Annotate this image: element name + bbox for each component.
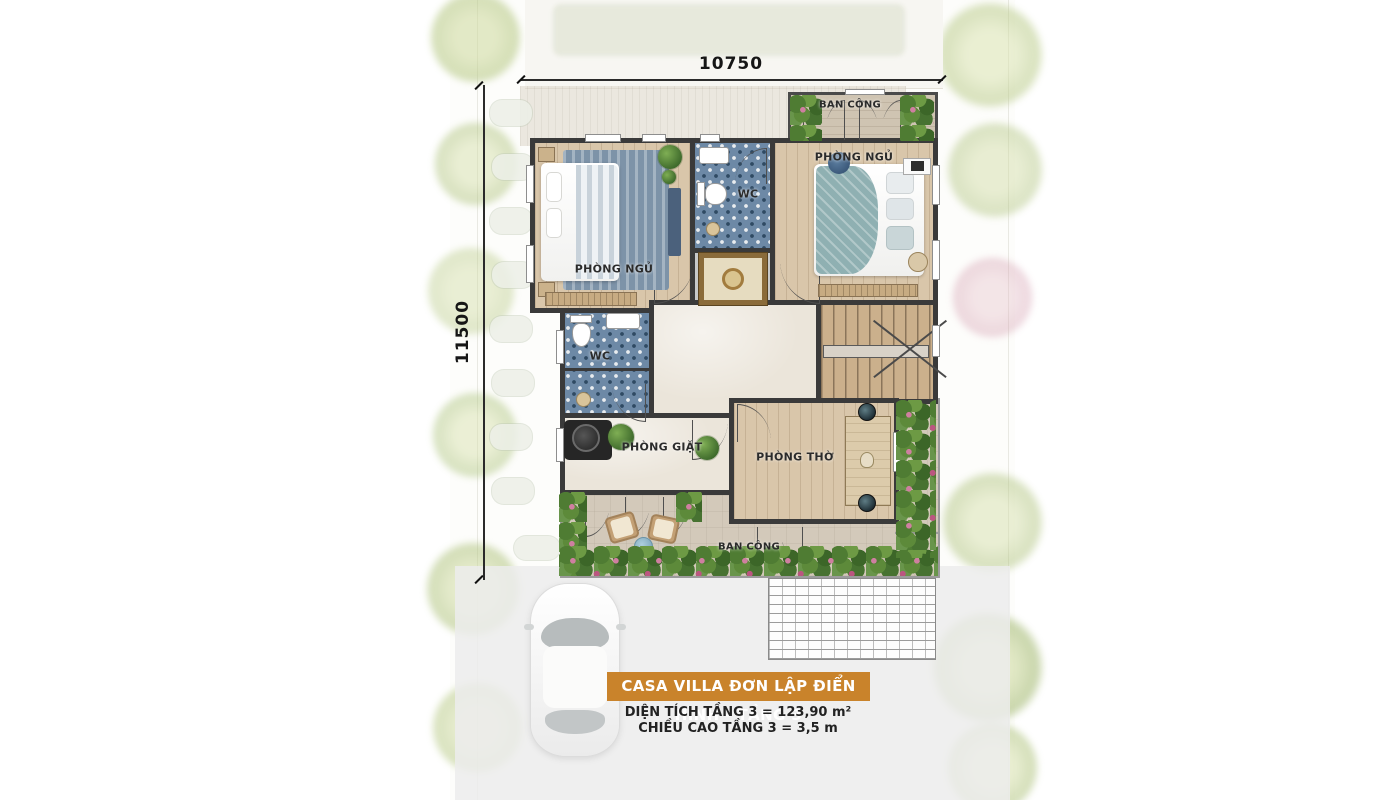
window bbox=[700, 134, 720, 142]
window bbox=[932, 240, 940, 280]
car-mirror bbox=[616, 624, 626, 630]
dimension-width-label: 10750 bbox=[699, 54, 763, 74]
caption-area: DIỆN TÍCH TẦNG 3 = 123,90 m² bbox=[625, 705, 852, 720]
toilet-tank bbox=[697, 182, 705, 206]
plant bbox=[662, 170, 676, 184]
plan-title-banner: CASA VILLA ĐƠN LẬP ĐIỂN HÌNH - TẦNG 3 bbox=[607, 672, 870, 701]
window bbox=[526, 245, 534, 283]
stepping-stone bbox=[490, 208, 532, 234]
terrace-border-right bbox=[896, 400, 936, 558]
label-balcony-top: BAN CÔNG bbox=[819, 100, 881, 111]
floor-plan-scene: 10750 11500 bbox=[0, 0, 1400, 800]
window bbox=[585, 134, 621, 142]
terrace-corner-bush bbox=[676, 492, 702, 522]
bench bbox=[818, 284, 918, 297]
vase bbox=[858, 403, 876, 421]
balcony-planter bbox=[900, 95, 934, 141]
window bbox=[526, 165, 534, 203]
stepping-stone bbox=[492, 478, 534, 504]
stepping-stone bbox=[490, 424, 532, 450]
nightstand bbox=[538, 147, 555, 162]
sink bbox=[606, 313, 640, 329]
label-balcony-bottom: BAN CÔNG bbox=[718, 542, 780, 553]
dimension-height-label: 11500 bbox=[453, 300, 473, 364]
plant bbox=[658, 145, 682, 169]
faded-tree bbox=[950, 255, 1035, 340]
wc-divider bbox=[565, 368, 649, 371]
label-laundry: PHÒNG GIẶT bbox=[622, 441, 703, 454]
window bbox=[932, 325, 940, 357]
stepping-stone bbox=[492, 370, 534, 396]
caption-height: CHIỀU CAO TẦNG 3 = 3,5 m bbox=[638, 721, 838, 736]
stool bbox=[576, 392, 591, 407]
pillow bbox=[886, 172, 914, 194]
label-bedroom-right: PHÒNG NGỦ bbox=[815, 151, 894, 164]
window bbox=[642, 134, 666, 142]
label-bedroom-left: PHÒNG NGỦ bbox=[575, 263, 654, 276]
window bbox=[845, 89, 885, 95]
censer bbox=[860, 452, 874, 468]
ornate-rug-medallion bbox=[722, 268, 744, 290]
faded-tree bbox=[940, 470, 1045, 575]
bench bbox=[545, 292, 637, 306]
pillow bbox=[886, 226, 914, 250]
laptop bbox=[911, 161, 924, 171]
label-wc-side: WC bbox=[590, 350, 611, 363]
toilet-tank bbox=[570, 315, 592, 323]
side-table bbox=[908, 252, 928, 272]
stool bbox=[706, 222, 720, 236]
car bbox=[531, 584, 619, 756]
label-wc-top: WC bbox=[738, 188, 759, 201]
faded-tree bbox=[935, 0, 1045, 110]
dimension-line-top bbox=[521, 79, 943, 81]
dimension-line-left bbox=[483, 85, 485, 580]
pillow bbox=[886, 198, 914, 220]
lounge-chair-cushion bbox=[652, 518, 674, 540]
bed-right-blanket bbox=[816, 166, 878, 274]
vase bbox=[858, 494, 876, 512]
pillow bbox=[546, 172, 562, 202]
stepping-stone bbox=[490, 100, 532, 126]
faded-hedge bbox=[553, 4, 905, 56]
dresser bbox=[668, 188, 681, 256]
stepping-stone bbox=[514, 536, 560, 560]
window bbox=[556, 428, 564, 462]
pillow bbox=[546, 208, 562, 238]
brick-paving bbox=[768, 578, 936, 660]
sink bbox=[699, 147, 729, 164]
washing-machine-door bbox=[572, 424, 600, 452]
window bbox=[932, 165, 940, 205]
balcony-planter bbox=[790, 95, 822, 141]
toilet-bowl bbox=[705, 183, 727, 205]
faded-tree bbox=[945, 120, 1045, 220]
label-worship: PHÒNG THỜ bbox=[756, 451, 834, 464]
car-roof bbox=[543, 646, 607, 708]
car-mirror bbox=[524, 624, 534, 630]
window bbox=[556, 330, 564, 364]
stepping-stone bbox=[490, 316, 532, 342]
